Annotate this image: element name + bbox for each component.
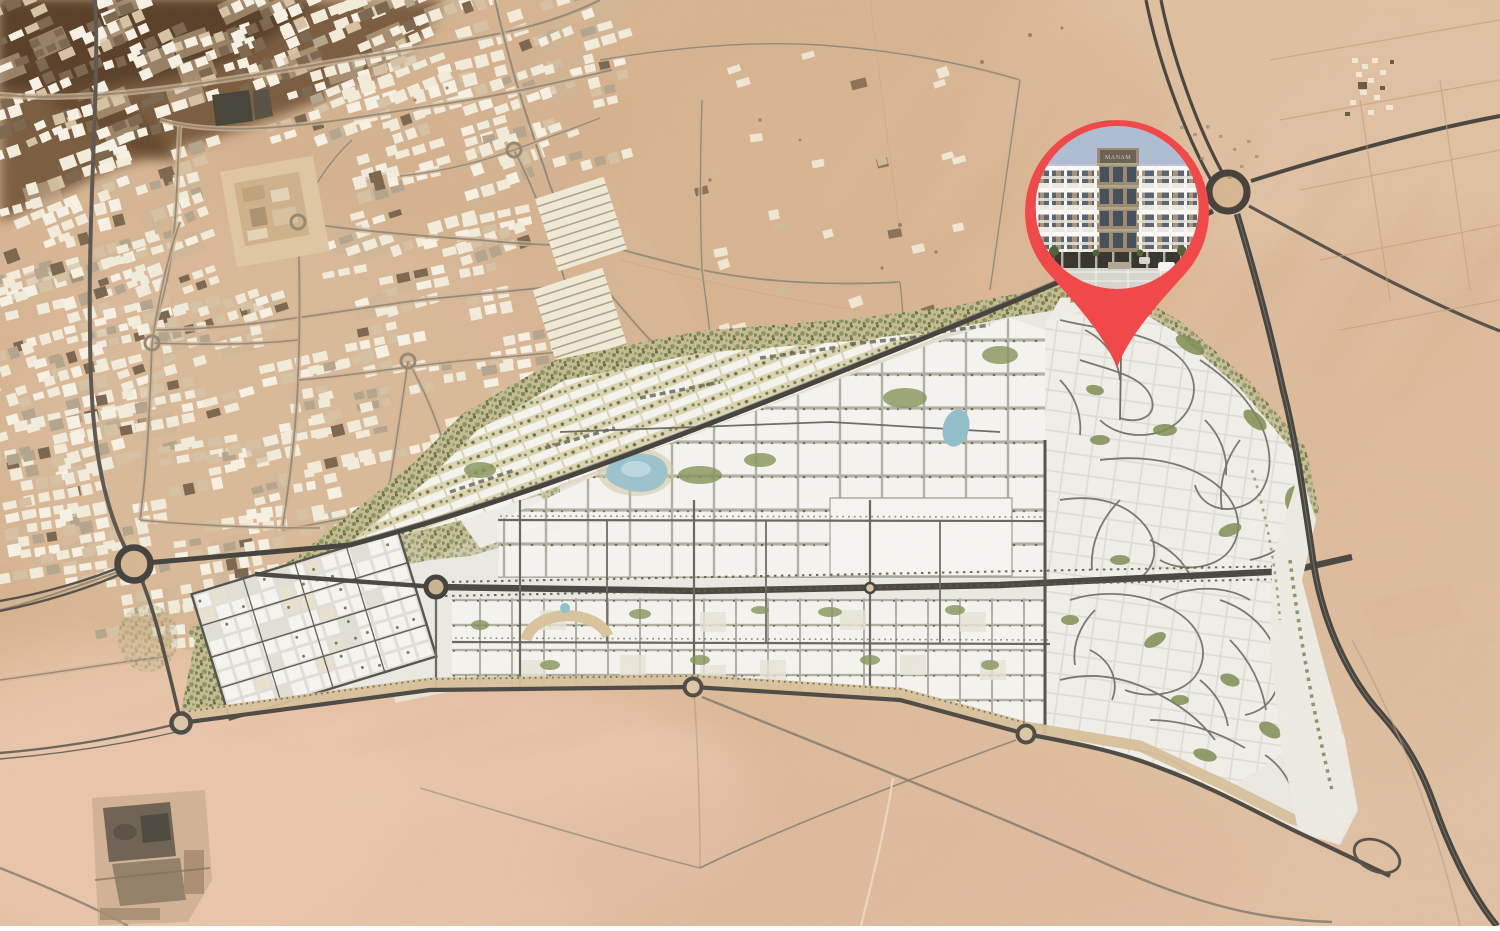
svg-text:MANAM: MANAM [1105, 155, 1131, 161]
